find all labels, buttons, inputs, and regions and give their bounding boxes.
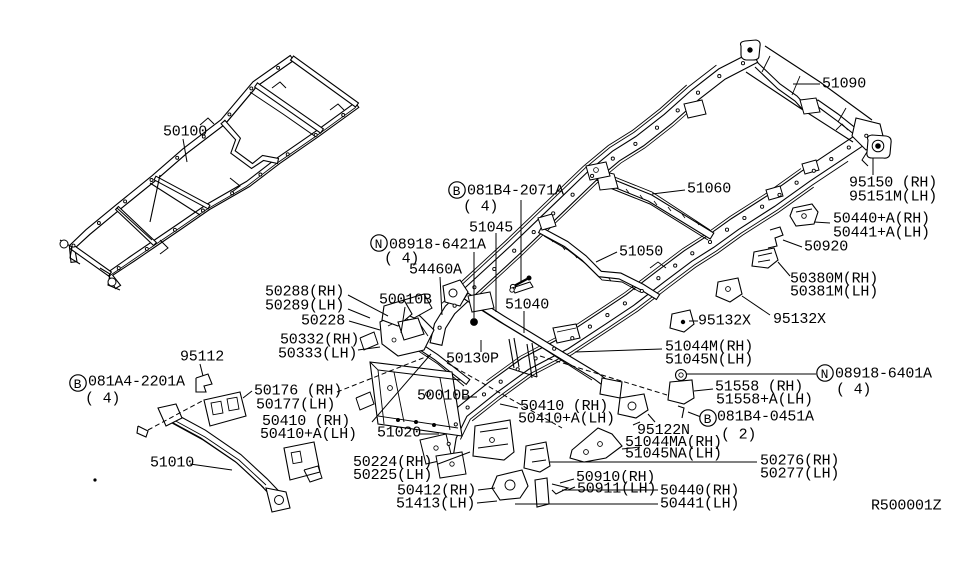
svg-text:95112: 95112 <box>180 349 224 366</box>
svg-text:081A4-2201A: 081A4-2201A <box>88 374 185 391</box>
svg-text:( 4): ( 4) <box>463 199 498 216</box>
svg-text:B: B <box>704 412 712 427</box>
svg-text:51020: 51020 <box>377 425 421 442</box>
svg-text:50911(LH): 50911(LH) <box>577 481 656 498</box>
svg-text:08918-6401A: 08918-6401A <box>835 366 932 383</box>
svg-text:51045N(LH): 51045N(LH) <box>665 352 753 369</box>
svg-text:B: B <box>453 184 461 199</box>
svg-text:B: B <box>74 377 82 392</box>
svg-text:51010: 51010 <box>150 455 194 472</box>
svg-text:50410+A(LH): 50410+A(LH) <box>518 411 615 428</box>
svg-text:95132X: 95132X <box>698 313 751 330</box>
svg-text:50381M(LH): 50381M(LH) <box>790 284 878 301</box>
svg-text:51045NA(LH): 51045NA(LH) <box>625 446 722 463</box>
svg-text:50441(LH): 50441(LH) <box>660 496 739 513</box>
svg-text:50277(LH): 50277(LH) <box>760 466 839 483</box>
svg-text:50225(LH): 50225(LH) <box>353 467 432 484</box>
svg-text:50410+A(LH): 50410+A(LH) <box>260 426 357 443</box>
svg-text:51040: 51040 <box>505 297 549 314</box>
svg-text:N: N <box>375 237 383 252</box>
svg-text:( 4): ( 4) <box>85 391 120 408</box>
svg-text:95151M(LH): 95151M(LH) <box>849 189 937 206</box>
svg-text:51050: 51050 <box>619 244 663 261</box>
svg-text:95132X: 95132X <box>773 311 826 328</box>
svg-text:50920: 50920 <box>804 239 848 256</box>
svg-text:50010B: 50010B <box>417 388 470 405</box>
svg-text:51558+A(LH): 51558+A(LH) <box>716 392 813 409</box>
svg-text:50177(LH): 50177(LH) <box>256 397 335 414</box>
svg-text:R500001Z: R500001Z <box>871 498 942 515</box>
svg-text:50333(LH): 50333(LH) <box>278 346 357 363</box>
svg-text:50130P: 50130P <box>446 351 499 368</box>
svg-text:50228: 50228 <box>301 313 345 330</box>
svg-text:51060: 51060 <box>687 181 731 198</box>
svg-text:081B4-2071A: 081B4-2071A <box>467 183 564 200</box>
svg-text:( 2): ( 2) <box>721 427 756 444</box>
svg-text:51090: 51090 <box>822 76 866 93</box>
svg-text:50010B: 50010B <box>379 292 432 309</box>
svg-text:081B4-0451A: 081B4-0451A <box>717 409 814 426</box>
svg-text:51045: 51045 <box>469 220 513 237</box>
svg-text:( 4): ( 4) <box>836 382 871 399</box>
svg-text:N: N <box>821 367 829 382</box>
svg-text:51413(LH): 51413(LH) <box>396 496 475 513</box>
svg-text:54460A: 54460A <box>409 262 462 279</box>
svg-text:50100: 50100 <box>163 124 207 141</box>
